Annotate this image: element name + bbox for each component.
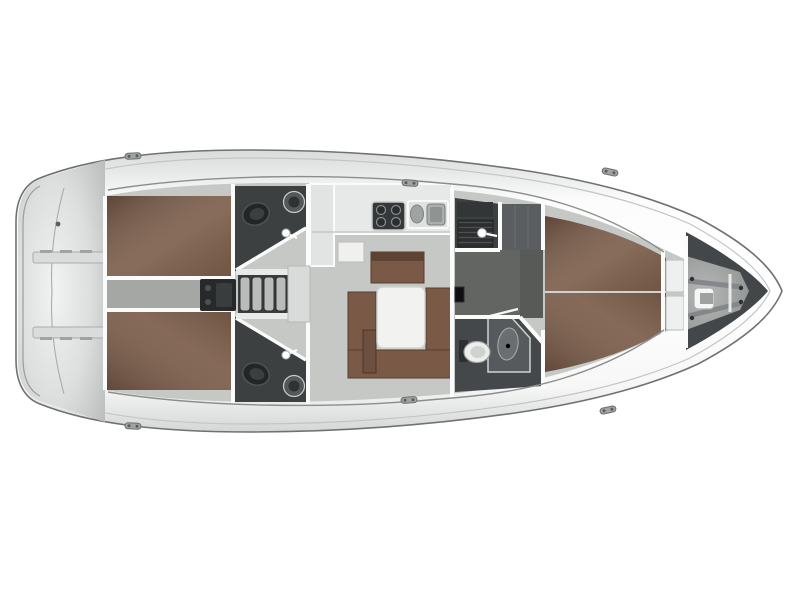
step-tread-mark — [40, 250, 52, 253]
shower-room-fittings — [457, 202, 497, 247]
galley-sinks: Twin galley sinks — [408, 201, 448, 228]
tv-panel — [455, 287, 464, 302]
toilet-bowl — [471, 346, 486, 358]
burner — [377, 218, 386, 227]
engine-detail — [216, 283, 232, 307]
step-rail — [236, 269, 290, 275]
aft-cabin-port: Aft cabin double berth (port) — [107, 196, 233, 278]
companionway-hatch: Companionway hatch — [288, 266, 310, 322]
salon-stool: Salon stool seat — [363, 330, 376, 373]
engine-detail — [205, 299, 211, 305]
aft-cabin-starboard: Aft cabin double berth (starboard) — [107, 310, 233, 390]
burner — [377, 206, 386, 215]
step-tread — [276, 277, 286, 311]
step-tread-mark — [40, 337, 52, 340]
corridor-shadow — [520, 250, 543, 318]
shower-head-icon — [282, 229, 290, 237]
step-tread-mark — [80, 250, 92, 253]
sink-basin — [289, 197, 300, 208]
wardrobe: Wardrobe locker — [502, 204, 541, 250]
bolt — [739, 286, 743, 290]
swim-step-upper: Transom boarding step (port) — [33, 250, 107, 263]
step-tread — [240, 277, 250, 311]
step-tread-mark — [60, 250, 72, 253]
transom-fitting — [56, 222, 61, 227]
burner — [392, 206, 401, 215]
bolt — [690, 277, 694, 281]
step-tread — [264, 277, 274, 311]
boat-floor-plan: Sailing yacht hull - interior layout pla… — [0, 0, 800, 600]
step-tread-mark — [60, 337, 72, 340]
salon-table: Salon table — [377, 287, 425, 348]
shower-head-icon — [478, 229, 487, 238]
windlass-bracket-notch — [700, 293, 713, 304]
cleat: Mooring cleat — [602, 167, 619, 176]
swim-step-lower: Transom boarding step (starboard) — [33, 327, 107, 340]
berth-shading — [107, 310, 233, 390]
aft-bench-backrest — [371, 252, 424, 261]
engine-detail — [205, 285, 211, 291]
step-tread — [252, 277, 262, 311]
chart-table: Chart table — [338, 242, 364, 262]
transom-platform: Transom with swim platform Transom board… — [18, 160, 107, 422]
bolt — [739, 300, 743, 304]
berth-shading — [107, 196, 233, 278]
sink-basin-inner — [430, 207, 442, 222]
sink-basin-round — [411, 205, 424, 223]
stove: Galley stove with four burners — [372, 202, 405, 230]
cleat: Mooring cleat — [600, 405, 617, 414]
cleat: Mooring cleat — [402, 179, 418, 186]
companionway-steps: Companionway steps — [236, 269, 290, 319]
foot-locker — [666, 260, 684, 292]
cleat: Mooring cleat — [125, 423, 141, 430]
step-tread-mark — [80, 337, 92, 340]
sink-basin — [289, 381, 300, 392]
engine-compartment: Engine compartment under companionway — [200, 279, 236, 311]
foot-locker — [666, 296, 684, 330]
cleat: Mooring cleat — [401, 396, 417, 403]
galley-cabinet — [310, 184, 334, 266]
shower-drain — [506, 344, 510, 348]
bolt — [690, 316, 694, 320]
engine-room-floor — [107, 280, 203, 308]
cleat: Mooring cleat — [125, 153, 141, 160]
shower-shelf — [457, 202, 493, 217]
burner — [392, 218, 401, 227]
step-rail — [236, 313, 290, 319]
shower-head-icon — [282, 351, 290, 359]
